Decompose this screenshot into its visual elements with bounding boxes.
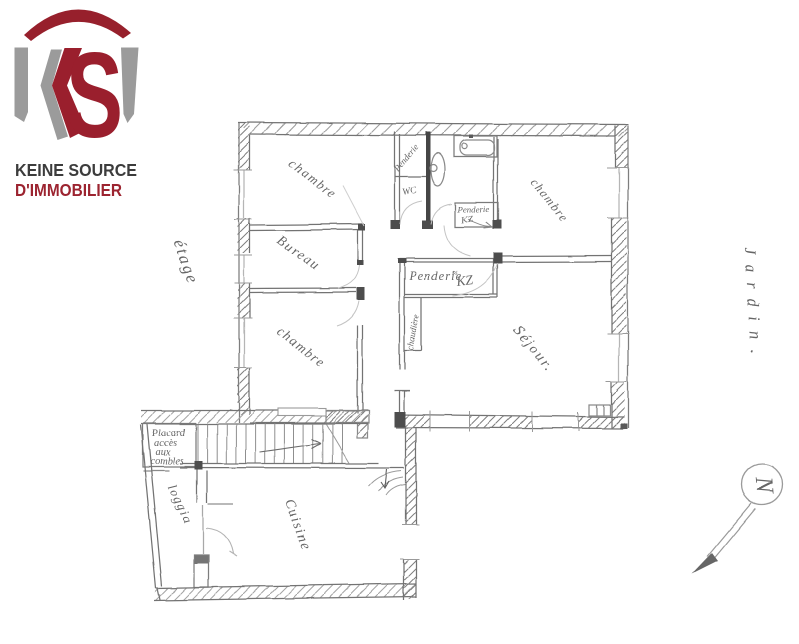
svg-text:loggia: loggia <box>165 482 196 527</box>
svg-text:N: N <box>750 475 779 496</box>
svg-text:chambre: chambre <box>274 324 328 371</box>
svg-text:Penderie: Penderie <box>391 142 420 174</box>
svg-text:chaudière: chaudière <box>405 313 421 350</box>
svg-text:D'IMMOBILIER: D'IMMOBILIER <box>15 180 122 200</box>
svg-text:Cuisine: Cuisine <box>281 497 313 552</box>
svg-text:Jardin.: Jardin. <box>741 246 766 363</box>
svg-text:étage: étage <box>170 236 203 286</box>
svg-text:chambre: chambre <box>528 175 572 225</box>
svg-text:KEINE SOURCE: KEINE SOURCE <box>15 160 137 180</box>
svg-text:combles: combles <box>150 456 184 467</box>
svg-text:S: S <box>66 27 123 163</box>
svg-text:WC: WC <box>402 185 419 198</box>
svg-text:KZ: KZ <box>460 214 475 226</box>
svg-text:Séjour.: Séjour. <box>510 323 557 376</box>
svg-text:Bureau: Bureau <box>274 233 323 274</box>
svg-text:KZ: KZ <box>455 272 475 289</box>
svg-text:Penderie: Penderie <box>457 204 490 214</box>
svg-text:chambre: chambre <box>286 156 340 202</box>
